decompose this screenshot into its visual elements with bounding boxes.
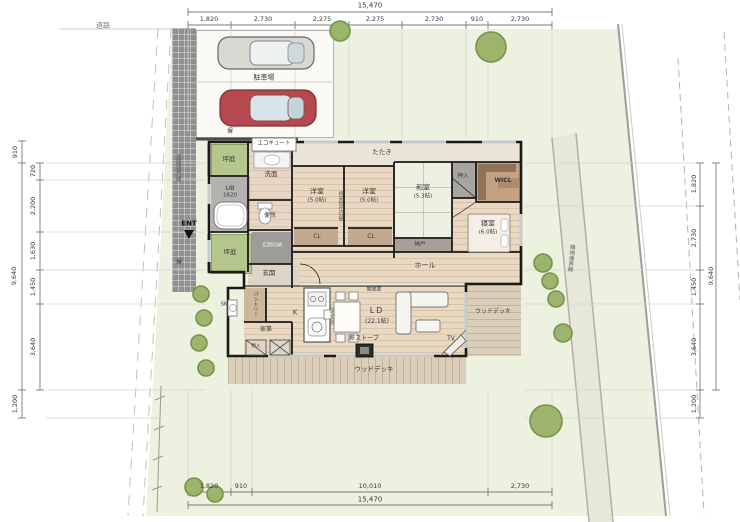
entrance-label: 玄関: [263, 270, 276, 277]
ent-arrow-icon: [184, 230, 194, 239]
dimension-lines: [18, 8, 720, 509]
fence-top-label: 塀: [227, 129, 233, 135]
tv-board: [440, 330, 466, 356]
dim-top-total: 15,470: [358, 3, 383, 10]
washbasin: [254, 152, 290, 168]
dim-left-1200: 1,200: [12, 395, 19, 414]
opening-note-label: 開放扉: [366, 288, 381, 293]
cl1-label: CL: [313, 234, 321, 240]
courtyard2-label: 坪庭: [224, 249, 237, 256]
unit-bath-size: 1620: [223, 193, 237, 199]
parking-label: 駐車場: [254, 75, 275, 82]
ld-label: LD: [370, 307, 385, 315]
toilet-label: 便所: [264, 213, 276, 219]
dim-left-seg-2: 1,630: [30, 242, 37, 261]
storage-small-label: 物入: [252, 345, 261, 350]
dim-right-seg-2: 1,450: [691, 278, 698, 297]
plan-graphics: [0, 0, 740, 522]
wood-stove-label: 薪ストーブ: [349, 336, 379, 342]
wood-deck-bottom-label: ウッドデッキ: [355, 366, 394, 373]
car-red: [220, 90, 316, 126]
car-gray: [218, 37, 314, 69]
dim-top-seg-1: 2,730: [254, 16, 273, 23]
western1-label: 洋室: [310, 189, 324, 196]
japanese-room-size: (5.3帖): [414, 194, 433, 200]
dim-right-seg-1: 2,730: [691, 229, 698, 248]
dim-top-seg-4: 2,730: [425, 16, 444, 23]
dim-left-total: 9,640: [11, 267, 18, 286]
kitchen-label: K: [293, 310, 298, 317]
bathtub: [214, 202, 247, 229]
road-centerlines: [128, 28, 171, 516]
ecocute-label: エコキュート: [257, 141, 290, 147]
dim-right-seg-0: 1,820: [691, 175, 698, 194]
dim-bottom-seg-2: 10,010: [359, 483, 382, 490]
entrance-marker-label: ENT: [181, 221, 196, 228]
western2-size: (5.0帖): [360, 198, 379, 204]
floor-plan-page: 道路 駐車場 塀 塀 道路境界線 隣地境界線 ENT エコキュート 坪庭 坪庭 …: [0, 0, 740, 522]
dim-top-seg-3: 2,275: [366, 16, 385, 23]
entrance-storage-label: 玄関収納: [262, 244, 282, 249]
japanese-room-label: 和室: [416, 185, 430, 192]
utility-label: 家事: [260, 327, 272, 333]
dim-left-seg-3: 1,450: [30, 278, 37, 297]
dim-right-seg-3: 3,640: [691, 338, 698, 357]
tataki-label: たたき: [372, 149, 392, 156]
dim-bottom-seg-3: 2,730: [511, 483, 530, 490]
sk-sink: [228, 300, 237, 316]
dim-bottom-seg-1: 910: [235, 483, 247, 490]
extension-lines: [46, 29, 698, 488]
tv-label: TV: [447, 336, 455, 342]
dim-bottom-total: 15,470: [358, 497, 383, 504]
ld-size: (22.1帖): [365, 319, 389, 325]
dim-top-seg-0: 1,820: [200, 16, 219, 23]
dim-bottom-seg-0: 1,820: [200, 483, 219, 490]
courtyard1-label: 坪庭: [223, 156, 236, 163]
wood-stove: [356, 344, 373, 357]
dim-top-seg-2: 2,275: [313, 16, 332, 23]
nando-label: 納戸: [414, 242, 425, 248]
cl2-label: CL: [367, 234, 375, 240]
boundary-lines: [60, 24, 740, 522]
sofa: [396, 292, 448, 334]
dim-right-total: 9,640: [708, 267, 715, 286]
washroom-label: 洗面: [265, 171, 278, 178]
road-label: 道路: [96, 23, 110, 30]
oshiire-label: 押入: [457, 174, 468, 180]
dim-top-seg-5: 910: [471, 16, 483, 23]
bedroom-size: (6.0帖): [479, 230, 498, 236]
pantry-label: パントリー: [253, 292, 258, 317]
road-boundary-label: 道路境界線: [174, 154, 180, 182]
dim-left-seg-4: 3,640: [30, 338, 37, 357]
partition-note-label: 将来間仕切壁: [338, 191, 343, 221]
wood-deck-right-label: ウッドデッキ: [475, 309, 511, 315]
hall-label: ホール: [415, 263, 436, 270]
fence-left-label: 塀: [176, 260, 182, 266]
dim-top-seg-6: 2,730: [511, 16, 530, 23]
unit-bath-label: UB: [225, 185, 234, 192]
wicl-label: WICL: [494, 178, 511, 184]
bedroom-label: 寝室: [481, 221, 495, 228]
western2-label: 洋室: [362, 189, 376, 196]
dim-left-seg-0: 720: [30, 165, 37, 177]
dim-left-seg-1: 2,200: [30, 197, 37, 216]
dim-left-910: 910: [12, 146, 19, 158]
kitchen-counter-note: W2550: [332, 307, 337, 325]
western1-size: (5.0帖): [308, 198, 327, 204]
dim-right-seg-4: 1,200: [691, 395, 698, 414]
sk-label: SK: [220, 302, 227, 308]
